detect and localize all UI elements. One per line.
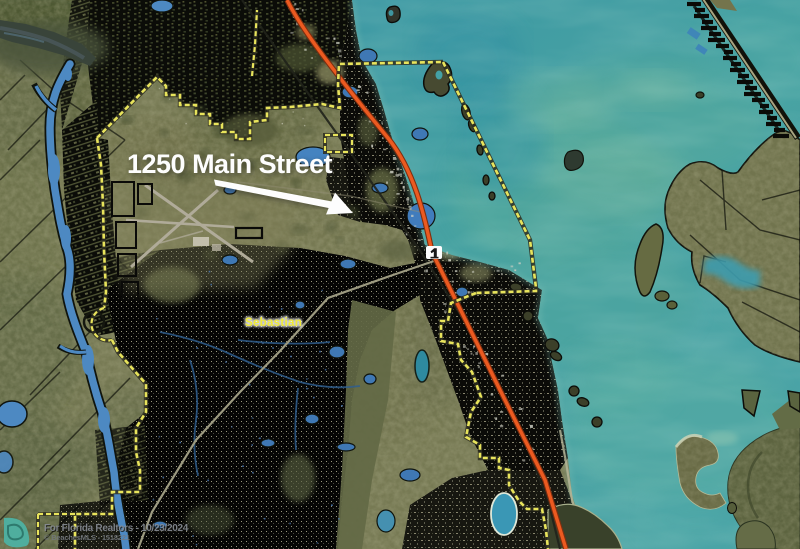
svg-text:Sebastian: Sebastian bbox=[245, 317, 302, 329]
svg-text:© BeachesMLS - 1518221: © BeachesMLS - 1518221 bbox=[44, 533, 130, 542]
svg-text:1250 Main Street: 1250 Main Street bbox=[127, 149, 333, 179]
